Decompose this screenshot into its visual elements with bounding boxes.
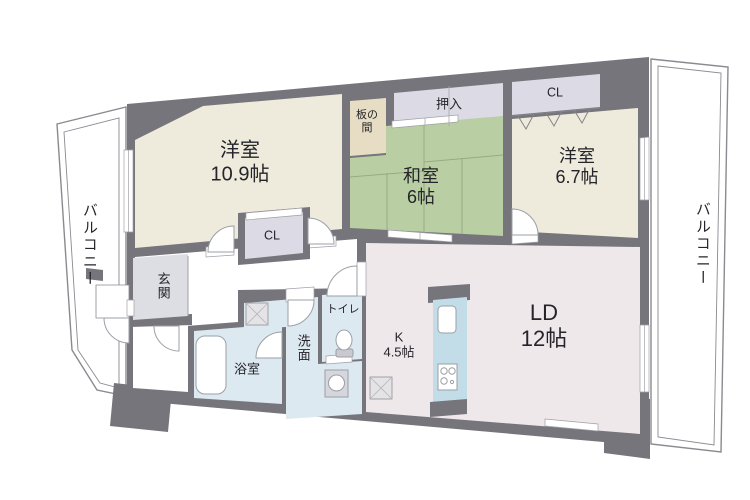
pillar-bottom-left	[110, 383, 172, 432]
label-washroom: 洗面	[295, 334, 310, 362]
label-balcony-left: バルコニー	[80, 203, 98, 288]
label-bathroom: 浴室	[234, 361, 260, 376]
label-genkan: 玄関	[155, 272, 170, 300]
toilet-bowl	[336, 330, 353, 357]
label-yoshitsu-67: 洋室6.7帖	[555, 146, 598, 188]
kitchen-sink	[438, 306, 456, 333]
label-washitsu: 和室6帖	[403, 166, 439, 208]
floorplan-page: 洋室10.9帖 和室6帖 洋室6.7帖 LD12帖 K4.5帖 板の間 押入 C…	[0, 0, 750, 500]
label-kitchen: K4.5帖	[383, 330, 414, 361]
label-toilet: トイレ	[327, 304, 360, 317]
label-itanoma: 板の間	[351, 109, 383, 135]
floorplan-drawing	[0, 0, 750, 500]
kitchen-counter	[428, 284, 470, 417]
label-balcony-right: バルコニー	[693, 202, 711, 287]
kitchen-stove	[438, 364, 457, 390]
washer-pan	[246, 303, 268, 325]
bathtub	[196, 336, 226, 394]
label-oshiire: 押入	[436, 96, 462, 111]
label-living-dining: LD12帖	[521, 300, 567, 352]
label-closet-north: CL	[547, 86, 563, 101]
label-closet-center: CL	[264, 229, 280, 244]
entry-porch	[96, 285, 129, 318]
refrigerator-space	[370, 377, 392, 399]
label-yoshitsu-109: 洋室10.9帖	[211, 139, 270, 186]
washbasin	[325, 370, 348, 397]
balcony-right-outline	[651, 59, 728, 452]
